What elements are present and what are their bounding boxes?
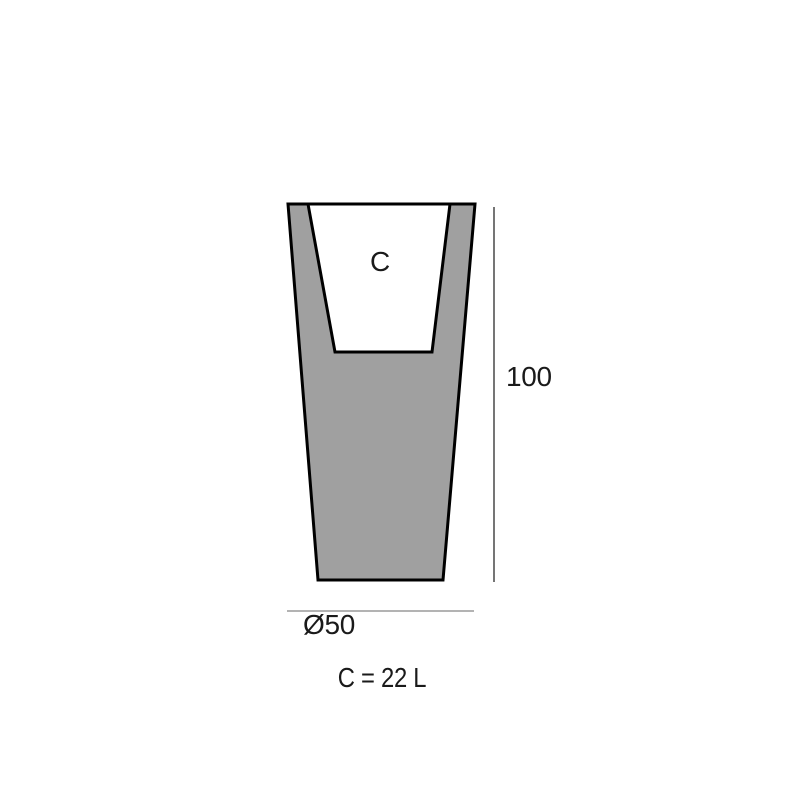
capacity-label: C = 22 L: [297, 664, 467, 692]
drawing-canvas: C 100 Ø50 C = 22 L: [0, 0, 800, 800]
height-dimension-label: 100: [506, 363, 552, 391]
diameter-dimension-label: Ø50: [303, 611, 355, 639]
cavity-label: C: [330, 248, 430, 276]
